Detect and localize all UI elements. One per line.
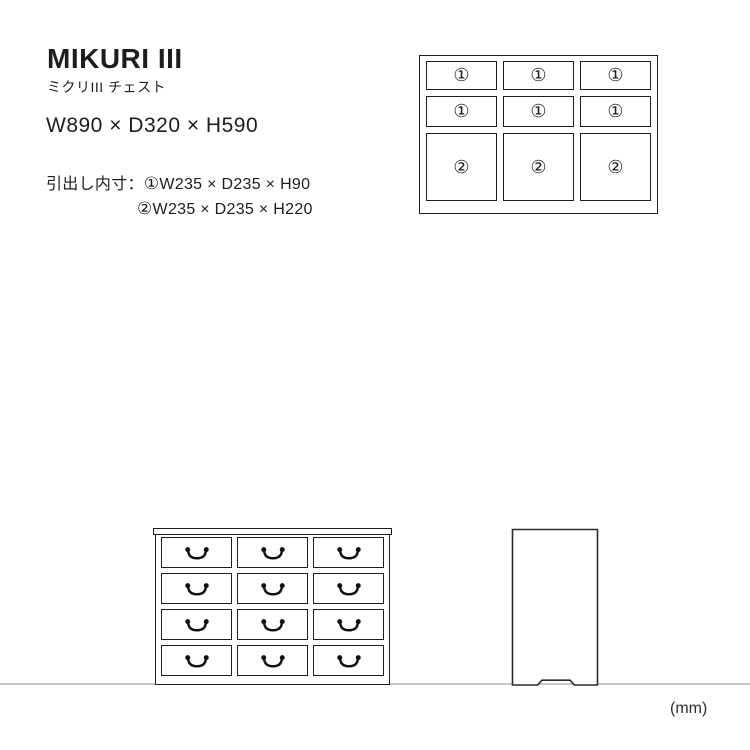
top-schematic-diagram: ① ① ① ① ① ① ② ② ② (419, 55, 658, 214)
side-outline-with-base-notch (513, 530, 598, 686)
drawer-front (313, 537, 384, 568)
drawer-spec-line-1: 引出し内寸：①W235 × D235 × H90 (46, 170, 310, 194)
circled-2-mark: ② (137, 199, 153, 218)
chest-carcass (155, 534, 390, 685)
drawer-front (161, 573, 232, 604)
chest-top-panel (153, 528, 392, 535)
drop-handle-icon (336, 546, 362, 560)
schematic-cell: ① (580, 61, 651, 90)
schematic-cell: ② (426, 133, 497, 201)
product-subtitle: ミクリIII チェスト (47, 77, 166, 97)
drawer-spec-line-2: ②W235 × D235 × H220 (137, 199, 313, 219)
drop-handle-icon (260, 654, 286, 668)
drawer-section-label: 引出し内寸： (46, 176, 144, 193)
drawer-front (237, 609, 308, 640)
product-title: MIKURI III (47, 43, 183, 75)
drawer-front (313, 573, 384, 604)
drawer-spec-1-text: W235 × D235 × H90 (159, 176, 310, 193)
drawer-front (237, 537, 308, 568)
drop-handle-icon (260, 582, 286, 596)
schematic-cell: ② (503, 133, 574, 201)
drop-handle-icon (336, 618, 362, 632)
spec-sheet: MIKURI III ミクリIII チェスト W890 × D320 × H59… (0, 0, 750, 750)
overall-dimensions: W890 × D320 × H590 (46, 114, 258, 138)
front-elevation-diagram (153, 528, 392, 685)
schematic-cell: ① (503, 61, 574, 90)
drawer-front (237, 645, 308, 676)
drawer-front (313, 645, 384, 676)
drop-handle-icon (336, 582, 362, 596)
schematic-cell: ① (426, 96, 497, 127)
unit-label: (mm) (670, 700, 707, 718)
circled-1-mark: ① (144, 174, 160, 193)
drop-handle-icon (184, 582, 210, 596)
schematic-cell: ① (503, 96, 574, 127)
schematic-cell: ① (580, 96, 651, 127)
drop-handle-icon (184, 654, 210, 668)
drop-handle-icon (184, 618, 210, 632)
top-schematic-grid: ① ① ① ① ① ① ② ② ② (426, 61, 651, 201)
drawer-front (161, 537, 232, 568)
drawer-front (313, 609, 384, 640)
schematic-cell: ① (426, 61, 497, 90)
drawer-grid (161, 537, 384, 676)
schematic-cell: ② (580, 133, 651, 201)
drawer-front (161, 645, 232, 676)
drop-handle-icon (260, 618, 286, 632)
drop-handle-icon (336, 654, 362, 668)
drop-handle-icon (260, 546, 286, 560)
drawer-spec-2-text: W235 × D235 × H220 (153, 201, 313, 218)
drawer-front (237, 573, 308, 604)
side-elevation-diagram (511, 528, 599, 687)
drop-handle-icon (184, 546, 210, 560)
drawer-front (161, 609, 232, 640)
